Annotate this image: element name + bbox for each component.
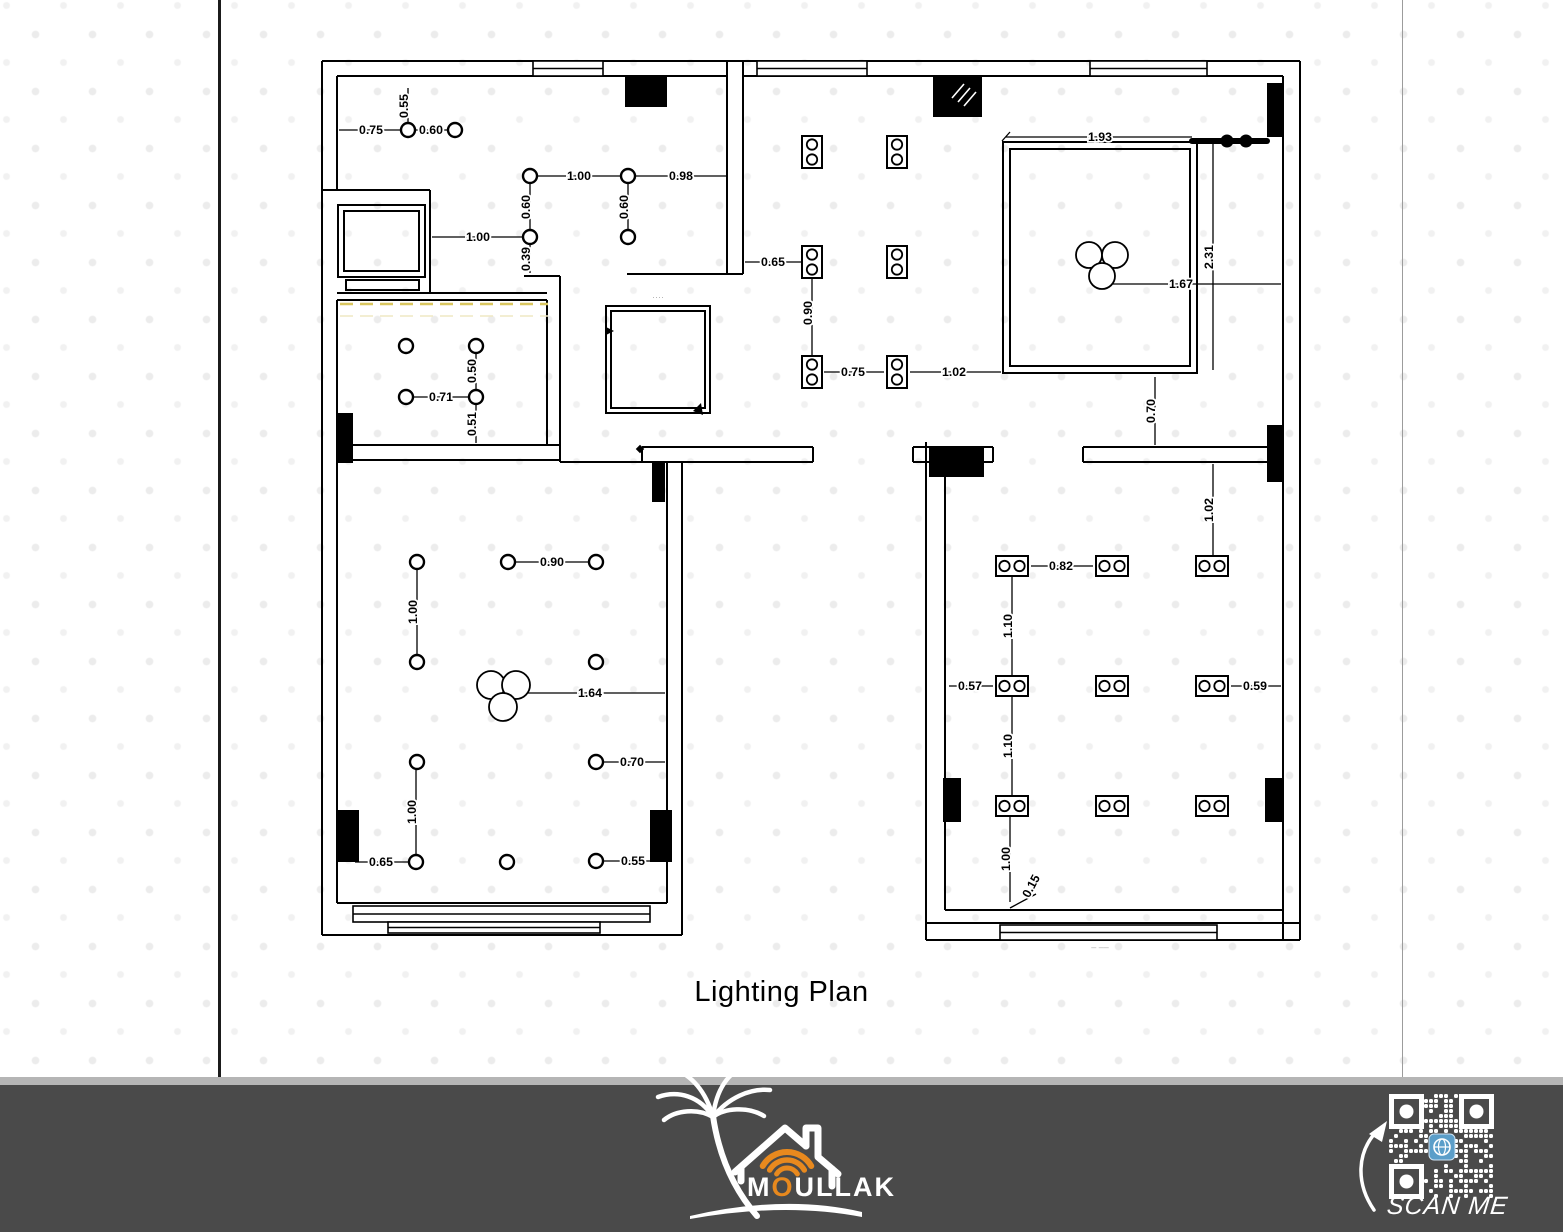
chandelier-icon <box>477 671 530 721</box>
dimension-label: 1.00 <box>567 169 591 183</box>
dimension-label: 0.50 <box>465 359 479 383</box>
dimension-label: 1.67 <box>1169 277 1193 291</box>
circle <box>807 249 817 259</box>
fixtures-layer <box>399 123 1267 869</box>
spot-pair-vertical-icon <box>887 356 907 388</box>
spot-pair-horizontal-icon <box>1196 796 1228 816</box>
columns-layer <box>337 77 1283 862</box>
dimension-label: 0.57 <box>958 679 982 693</box>
dimensions-layer: 0.550.750.601.000.980.600.601.000.390.50… <box>339 88 1281 908</box>
circle <box>999 561 1009 571</box>
dimension-label: 1.00 <box>406 600 420 624</box>
footer <box>0 1085 1563 1232</box>
circle <box>807 374 817 384</box>
downlight-icon <box>410 655 424 669</box>
dimension-label: 1.64 <box>578 686 602 700</box>
column <box>1267 425 1283 482</box>
scan-me-label: SCAN ME <box>1383 1192 1511 1221</box>
circle <box>1099 681 1109 691</box>
downlight-icon <box>589 655 603 669</box>
dimension-label: 1.00 <box>999 847 1013 871</box>
circle <box>807 139 817 149</box>
dimension-label: 0.90 <box>801 301 815 325</box>
dimension-label: 1.02 <box>1202 498 1216 522</box>
downlight-icon <box>399 390 413 404</box>
downlight-icon <box>409 855 423 869</box>
downlight-icon <box>589 555 603 569</box>
circle <box>1199 681 1209 691</box>
faint-mark: ···· <box>652 292 664 302</box>
spot-pair-vertical-icon <box>802 356 822 388</box>
dimension-label: 0.75 <box>359 123 383 137</box>
circle <box>1214 681 1224 691</box>
circle <box>1214 801 1224 811</box>
downlight-icon <box>410 555 424 569</box>
circle <box>892 154 902 164</box>
column <box>338 413 353 463</box>
dimension-label: 0.60 <box>519 195 533 219</box>
circle <box>807 264 817 274</box>
downlight-icon <box>523 230 537 244</box>
column <box>652 462 665 502</box>
downlight-icon <box>399 339 413 353</box>
footer-band <box>0 1077 1563 1085</box>
downlight-icon <box>621 169 635 183</box>
dimension-label: 1.02 <box>942 365 966 379</box>
downlight-icon <box>500 855 514 869</box>
circle <box>1014 561 1024 571</box>
track-light-dot <box>1221 135 1234 148</box>
dimension-label: 0.71 <box>429 390 453 404</box>
plan-title: Lighting Plan <box>0 976 1563 1009</box>
circle <box>892 139 902 149</box>
dimension-label: 0.65 <box>369 855 393 869</box>
downlight-icon <box>589 755 603 769</box>
brand-letter-o: O <box>772 1172 795 1202</box>
spot-pair-vertical-icon <box>802 246 822 278</box>
yellow-lines-layer <box>340 304 548 316</box>
spot-pair-vertical-icon <box>887 246 907 278</box>
downlight-icon <box>410 755 424 769</box>
downlight-icon <box>448 123 462 137</box>
column <box>1265 778 1282 822</box>
circle <box>489 693 517 721</box>
downlight-icon <box>523 169 537 183</box>
column <box>650 810 672 862</box>
spot-pair-horizontal-icon <box>996 556 1028 576</box>
dimension-label: 0.15 <box>1019 872 1043 900</box>
circle <box>999 801 1009 811</box>
spot-pair-horizontal-icon <box>1196 676 1228 696</box>
circle <box>1014 801 1024 811</box>
column <box>337 810 359 862</box>
circle <box>1214 561 1224 571</box>
spot-pair-vertical-icon <box>887 136 907 168</box>
dimension-label: 0.75 <box>841 365 865 379</box>
room-outline <box>606 306 710 413</box>
brand-letters-rest: ULLAK <box>795 1172 896 1202</box>
circle <box>1114 801 1124 811</box>
column <box>625 77 667 107</box>
walls-layer <box>322 61 1300 940</box>
track-light-dot <box>1240 135 1253 148</box>
downlight-icon <box>621 230 635 244</box>
circle <box>892 264 902 274</box>
faint-mark: – –– <box>1091 942 1109 952</box>
circle <box>892 359 902 369</box>
dimension-label: 2.31 <box>1202 245 1216 269</box>
downlight-icon <box>401 123 415 137</box>
dimension-label: 1.93 <box>1088 130 1112 144</box>
room-outline <box>611 311 705 408</box>
dimension-label: 0.70 <box>1144 399 1158 423</box>
column <box>929 447 984 477</box>
windows-layer <box>353 61 1217 940</box>
dimension-label: 1.10 <box>1001 614 1015 638</box>
circle <box>1099 561 1109 571</box>
dimension-label: 0.59 <box>1243 679 1267 693</box>
circle <box>999 681 1009 691</box>
downlight-icon <box>469 390 483 404</box>
dimension-label: 1.00 <box>405 800 419 824</box>
downlight-icon <box>501 555 515 569</box>
dimension-label: 0.90 <box>540 555 564 569</box>
room-outline <box>338 205 425 277</box>
dimension-label: 1.00 <box>466 230 490 244</box>
column <box>933 77 982 117</box>
dimension-label: 0.39 <box>519 247 533 271</box>
column <box>1267 83 1283 137</box>
dimension-label: 0.60 <box>617 195 631 219</box>
spot-pair-vertical-icon <box>802 136 822 168</box>
brand-letter-m: M <box>747 1172 772 1202</box>
dimension-label: 0.51 <box>465 412 479 436</box>
room-outline <box>344 211 419 271</box>
dimension-label: 0.65 <box>761 255 785 269</box>
circle <box>1199 561 1209 571</box>
circle <box>1099 801 1109 811</box>
room-outline <box>346 280 419 290</box>
spot-pair-horizontal-icon <box>1196 556 1228 576</box>
dimension-label: 0.70 <box>620 755 644 769</box>
spot-pair-horizontal-icon <box>1096 796 1128 816</box>
downlight-icon <box>469 339 483 353</box>
brand-wordmark: MOULLAK <box>747 1172 896 1203</box>
spot-pair-horizontal-icon <box>996 676 1028 696</box>
circle <box>892 374 902 384</box>
chandelier-icon <box>1076 242 1128 289</box>
circle <box>807 359 817 369</box>
dimension-label: 1.10 <box>1001 734 1015 758</box>
circle <box>1199 801 1209 811</box>
circle <box>1114 561 1124 571</box>
spot-pair-horizontal-icon <box>996 796 1028 816</box>
circle <box>892 249 902 259</box>
spot-pair-horizontal-icon <box>1096 676 1128 696</box>
dimension-label: 0.82 <box>1049 559 1073 573</box>
circle <box>1089 263 1115 289</box>
column <box>943 778 961 822</box>
page: 0.550.750.601.000.980.600.601.000.390.50… <box>0 0 1563 1232</box>
dimension-label: 0.55 <box>621 854 645 868</box>
spot-pair-horizontal-icon <box>1096 556 1128 576</box>
dimension-label: 0.60 <box>419 123 443 137</box>
circle <box>1114 681 1124 691</box>
dimension-label: 0.98 <box>669 169 693 183</box>
downlight-icon <box>589 854 603 868</box>
circle <box>807 154 817 164</box>
lighting-plan-drawing: 0.550.750.601.000.980.600.601.000.390.50… <box>0 0 1563 1085</box>
circle <box>1014 681 1024 691</box>
dimension-label: 0.55 <box>397 94 411 118</box>
